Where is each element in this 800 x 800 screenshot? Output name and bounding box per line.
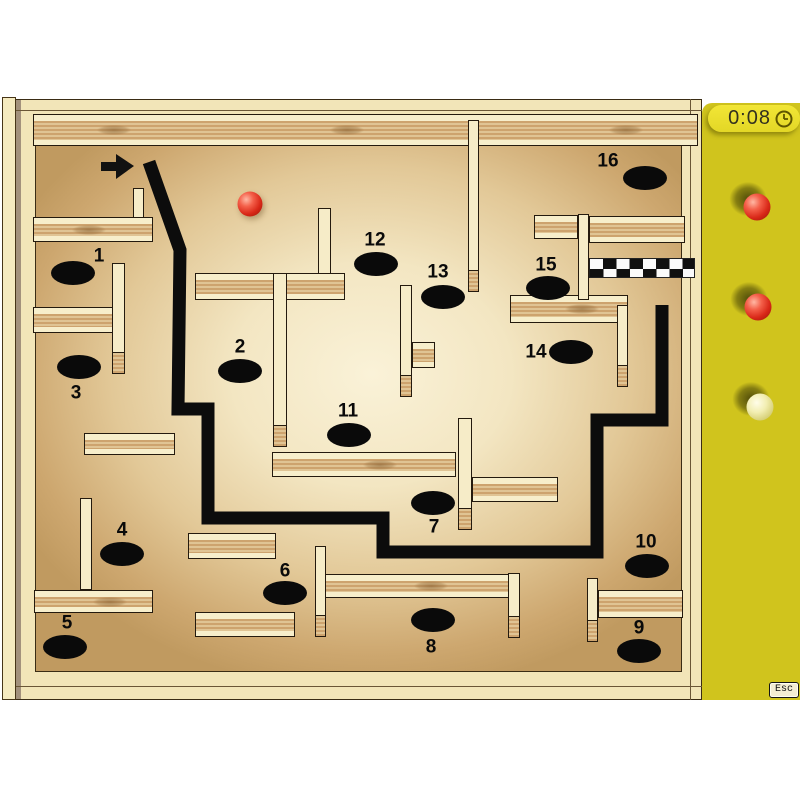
wall-plank — [133, 188, 144, 218]
wall-plank — [33, 217, 153, 242]
hole-13 — [421, 285, 465, 309]
wall-plank — [195, 612, 295, 637]
hole-label-15: 15 — [535, 256, 556, 275]
wood-knot — [603, 123, 649, 137]
wall-plank — [510, 295, 628, 323]
frame-divider-top — [16, 110, 702, 111]
wall-plank — [272, 452, 456, 477]
wall-plank — [80, 498, 92, 590]
wall-plank — [315, 546, 326, 637]
hole-5 — [43, 635, 87, 659]
hole-15 — [526, 276, 570, 300]
hole-label-5: 5 — [62, 614, 73, 633]
hole-label-16: 16 — [597, 152, 618, 171]
hole-7 — [411, 491, 455, 515]
esc-button[interactable]: Esc — [769, 682, 799, 698]
life-ball-1 — [744, 194, 771, 221]
wall-plank — [325, 574, 520, 598]
hole-label-9: 9 — [634, 619, 645, 638]
hole-2 — [218, 359, 262, 383]
wood-knot — [324, 123, 370, 137]
hole-label-8: 8 — [426, 638, 437, 657]
wood-knot — [66, 223, 112, 237]
hole-16 — [623, 166, 667, 190]
plank-end-grain — [617, 365, 628, 387]
wall-plank — [318, 208, 331, 274]
plank-end-grain — [315, 615, 326, 637]
hole-1 — [51, 261, 95, 285]
hole-label-14: 14 — [525, 343, 546, 362]
frame-divider-bottom — [16, 686, 702, 687]
wall-plank — [33, 307, 113, 333]
wall-plank — [84, 433, 175, 455]
hole-label-2: 2 — [235, 338, 246, 357]
wall-plank — [587, 578, 598, 642]
hole-8 — [411, 608, 455, 632]
hole-label-1: 1 — [94, 247, 105, 266]
timer-display: 0:08 — [708, 105, 800, 132]
hole-label-12: 12 — [364, 231, 385, 250]
wall-plank — [508, 573, 520, 638]
hole-label-7: 7 — [429, 518, 440, 537]
life-ball-2 — [745, 294, 772, 321]
hole-label-6: 6 — [280, 562, 291, 581]
wall-plank — [578, 214, 589, 300]
wall-plank — [33, 114, 698, 146]
wood-knot — [357, 458, 403, 472]
hole-14 — [549, 340, 593, 364]
wall-plank — [34, 590, 153, 613]
hole-9 — [617, 639, 661, 663]
marble — [238, 192, 263, 217]
frame-divider-right — [690, 99, 691, 700]
hole-label-11: 11 — [338, 402, 358, 421]
hole-12 — [354, 252, 398, 276]
labyrinth-game-screen: 12345678910111213141516 0:08 Esc — [0, 0, 800, 800]
wood-knot — [559, 302, 605, 316]
clock-icon — [774, 109, 794, 129]
wall-plank — [112, 263, 125, 374]
hole-label-10: 10 — [635, 533, 656, 552]
hole-label-4: 4 — [117, 521, 128, 540]
wall-plank — [617, 305, 628, 387]
hole-label-13: 13 — [427, 263, 448, 282]
plank-end-grain — [400, 375, 412, 397]
plank-end-grain — [273, 425, 287, 447]
wall-plank — [589, 216, 685, 243]
hole-label-3: 3 — [71, 384, 82, 403]
wall-plank — [468, 120, 479, 292]
wall-plank — [412, 342, 435, 368]
timer-value: 0:08 — [728, 107, 771, 130]
finish-checker-strip — [589, 258, 695, 278]
hole-11 — [327, 423, 371, 447]
wall-plank — [472, 477, 558, 502]
wood-knot — [87, 595, 133, 609]
wall-plank — [458, 418, 472, 530]
plank-end-grain — [468, 270, 479, 292]
wall-plank — [534, 215, 578, 239]
wood-knot — [408, 579, 454, 593]
wall-plank — [598, 590, 683, 618]
plank-end-grain — [112, 352, 125, 374]
board-rail-gap — [16, 100, 21, 699]
plank-end-grain — [587, 620, 598, 642]
wall-plank — [195, 273, 345, 300]
hole-4 — [100, 542, 144, 566]
hole-10 — [625, 554, 669, 578]
plank-end-grain — [458, 508, 472, 530]
board-left-rail — [2, 97, 16, 700]
life-ball-3 — [747, 394, 774, 421]
hole-6 — [263, 581, 307, 605]
wood-knot — [91, 123, 137, 137]
plank-end-grain — [508, 616, 520, 638]
wall-plank — [400, 285, 412, 397]
hole-3 — [57, 355, 101, 379]
wall-plank — [273, 273, 287, 447]
wall-plank — [188, 533, 276, 559]
